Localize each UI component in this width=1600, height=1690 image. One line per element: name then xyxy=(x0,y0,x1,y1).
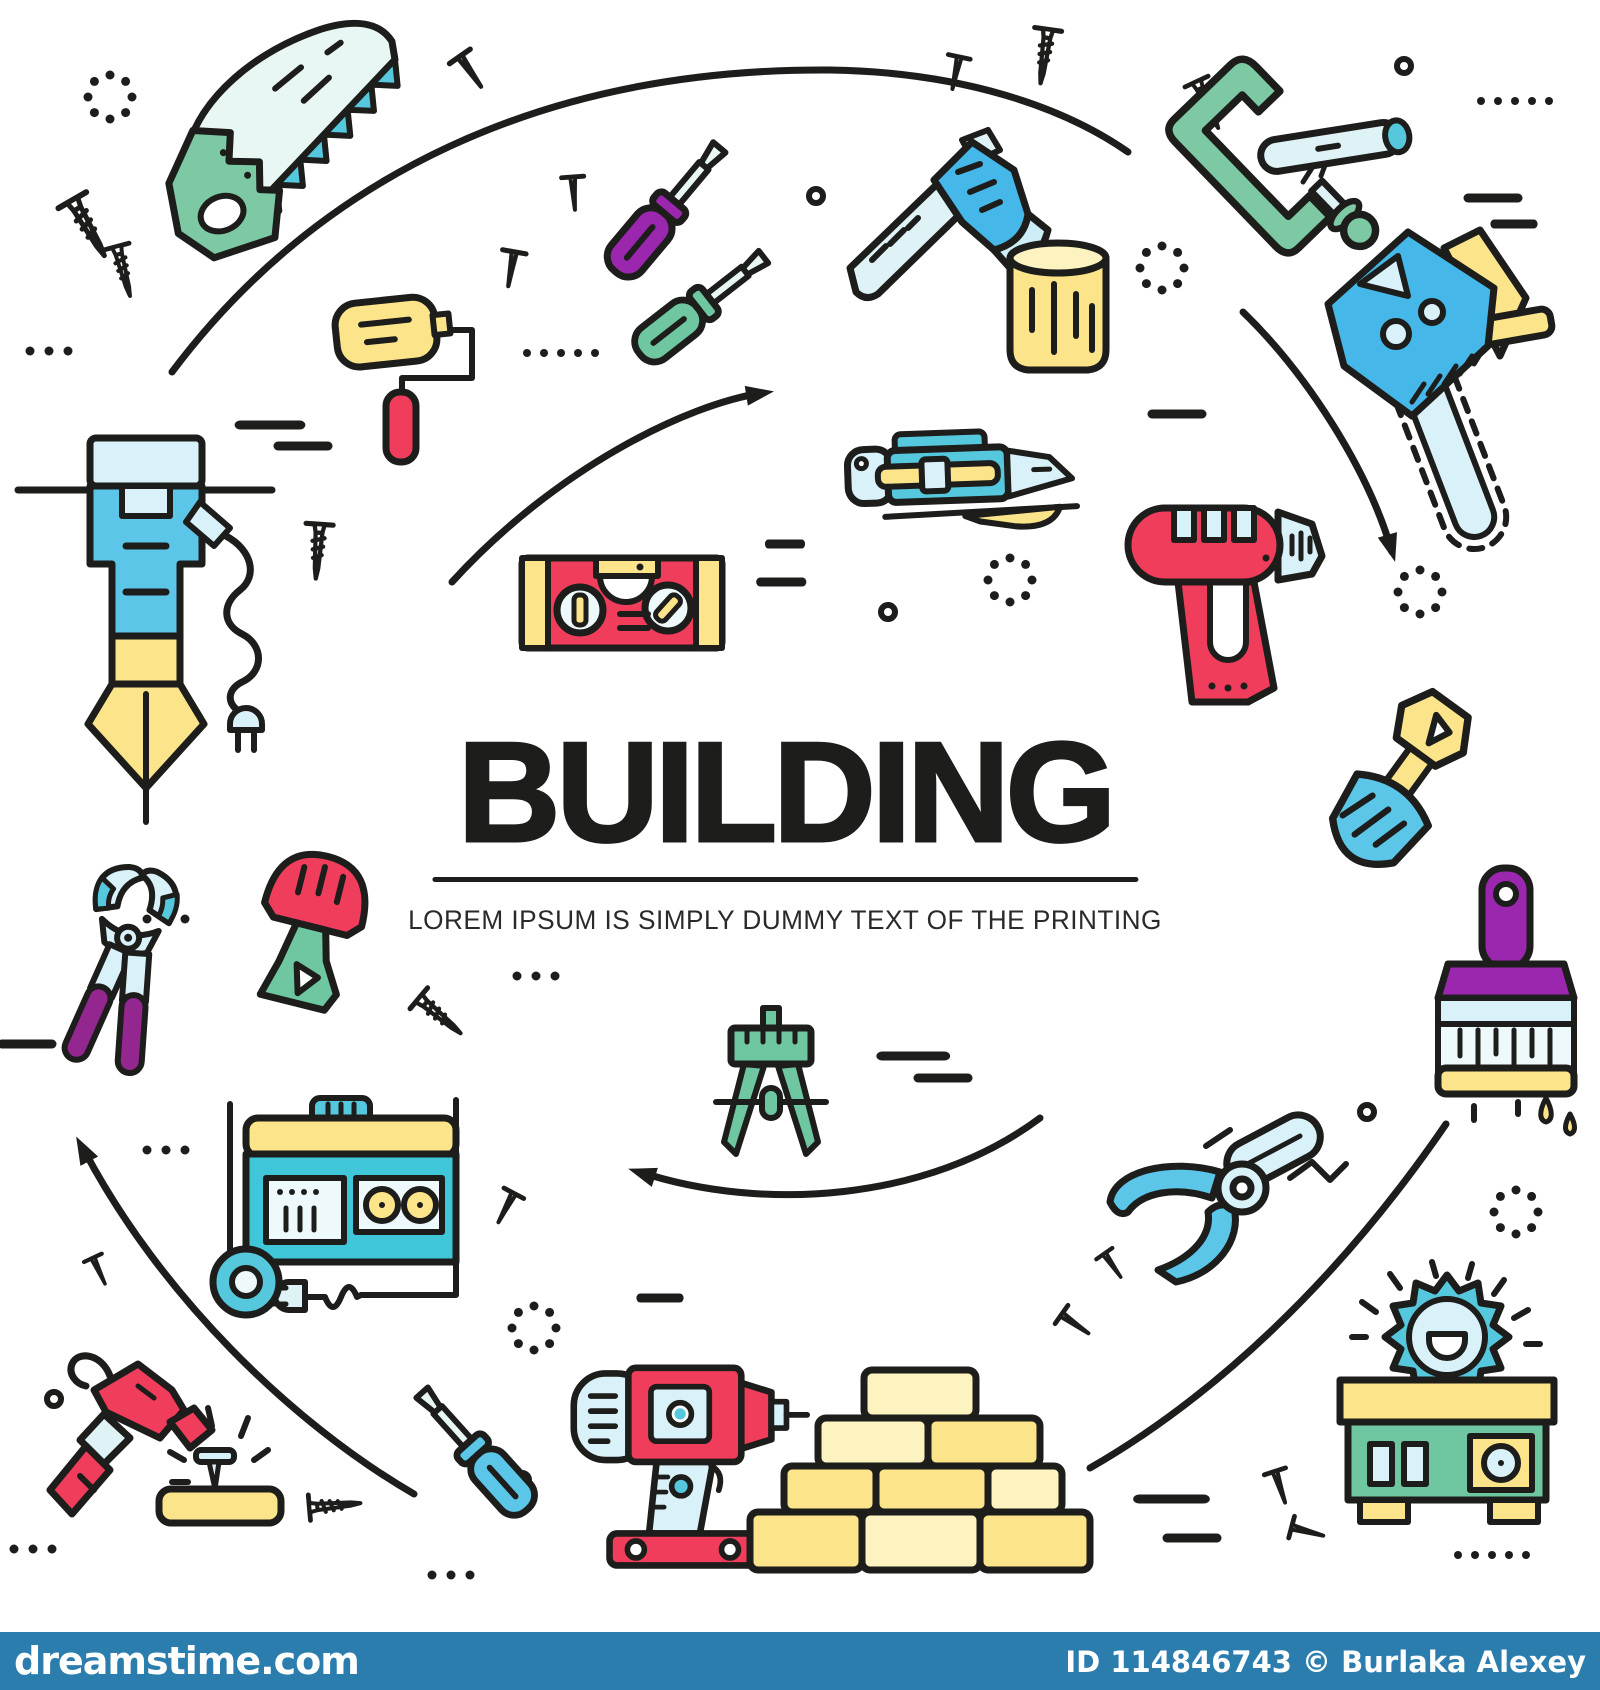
title-block: BUILDING LOREM IPSUM IS SIMPLY DUMMY TEX… xyxy=(396,722,1173,936)
wood-log-icon xyxy=(1002,232,1114,382)
paintbrush-icon xyxy=(1426,864,1586,1126)
handsaw-icon xyxy=(112,28,452,263)
ring-dot xyxy=(809,189,823,203)
dotted-circle xyxy=(1394,566,1447,619)
poster-canvas: BUILDING LOREM IPSUM IS SIMPLY DUMMY TEX… xyxy=(0,0,1600,1690)
ring-dot xyxy=(1360,1105,1374,1119)
nail-icon xyxy=(1055,1305,1095,1342)
trowel-icon xyxy=(246,848,371,1023)
pliers-icon xyxy=(50,864,200,1079)
screwdriver-green-icon xyxy=(630,224,770,389)
screwdriver-blue-icon xyxy=(406,1370,546,1535)
dots-row xyxy=(26,347,73,356)
dots-row xyxy=(1454,1551,1530,1559)
dots-row xyxy=(428,1571,475,1580)
watermark-credit: ID 114846743 © Burlaka Alexey xyxy=(1065,1645,1586,1679)
nail-icon xyxy=(497,250,526,288)
screw-icon xyxy=(1027,28,1062,86)
nail-icon xyxy=(1289,1516,1326,1546)
chainsaw-icon xyxy=(1316,224,1556,559)
page-title: BUILDING xyxy=(396,722,1173,864)
nail-icon xyxy=(84,1254,114,1288)
utility-knife-icon xyxy=(844,424,1089,534)
watermark-site: dreamstime.com xyxy=(14,1639,359,1683)
subtitle: LOREM IPSUM IS SIMPLY DUMMY TEXT OF THE … xyxy=(408,905,1162,936)
nail-and-board-icon xyxy=(154,1394,289,1529)
watermark-bar: dreamstime.com ID 114846743 © Burlaka Al… xyxy=(0,1632,1600,1690)
pruning-shears-icon xyxy=(1094,1106,1344,1291)
dots-row xyxy=(513,972,560,981)
nail-icon xyxy=(489,1188,524,1227)
nail-icon xyxy=(1264,1468,1295,1506)
dotted-circle xyxy=(1490,1186,1543,1239)
ring-dot xyxy=(1397,59,1411,73)
bricks-icon xyxy=(748,1364,1096,1579)
screw-icon xyxy=(410,988,469,1044)
dotted-circle xyxy=(508,1302,561,1355)
screw-icon xyxy=(308,1490,361,1520)
title-underline xyxy=(432,877,1138,882)
dotted-circle xyxy=(1136,242,1189,295)
compass-divider-icon xyxy=(706,1006,836,1156)
dotted-circle xyxy=(984,554,1037,607)
table-saw-icon xyxy=(1332,1262,1564,1526)
ring-dot xyxy=(881,605,895,619)
generator-icon xyxy=(194,1090,484,1335)
nail-icon xyxy=(561,176,586,210)
heat-gun-icon xyxy=(1126,490,1326,705)
dots-row xyxy=(143,1146,190,1155)
nail-icon xyxy=(450,49,492,94)
jackhammer-icon xyxy=(14,424,279,824)
paint-roller-icon xyxy=(332,290,482,470)
pipe-icon xyxy=(1256,122,1416,170)
screw-icon xyxy=(302,523,333,579)
dots-row xyxy=(523,349,599,357)
screw-icon xyxy=(58,192,118,263)
dots-row xyxy=(10,1545,57,1554)
dots-row xyxy=(1477,97,1553,105)
spirit-level-icon xyxy=(518,548,728,658)
